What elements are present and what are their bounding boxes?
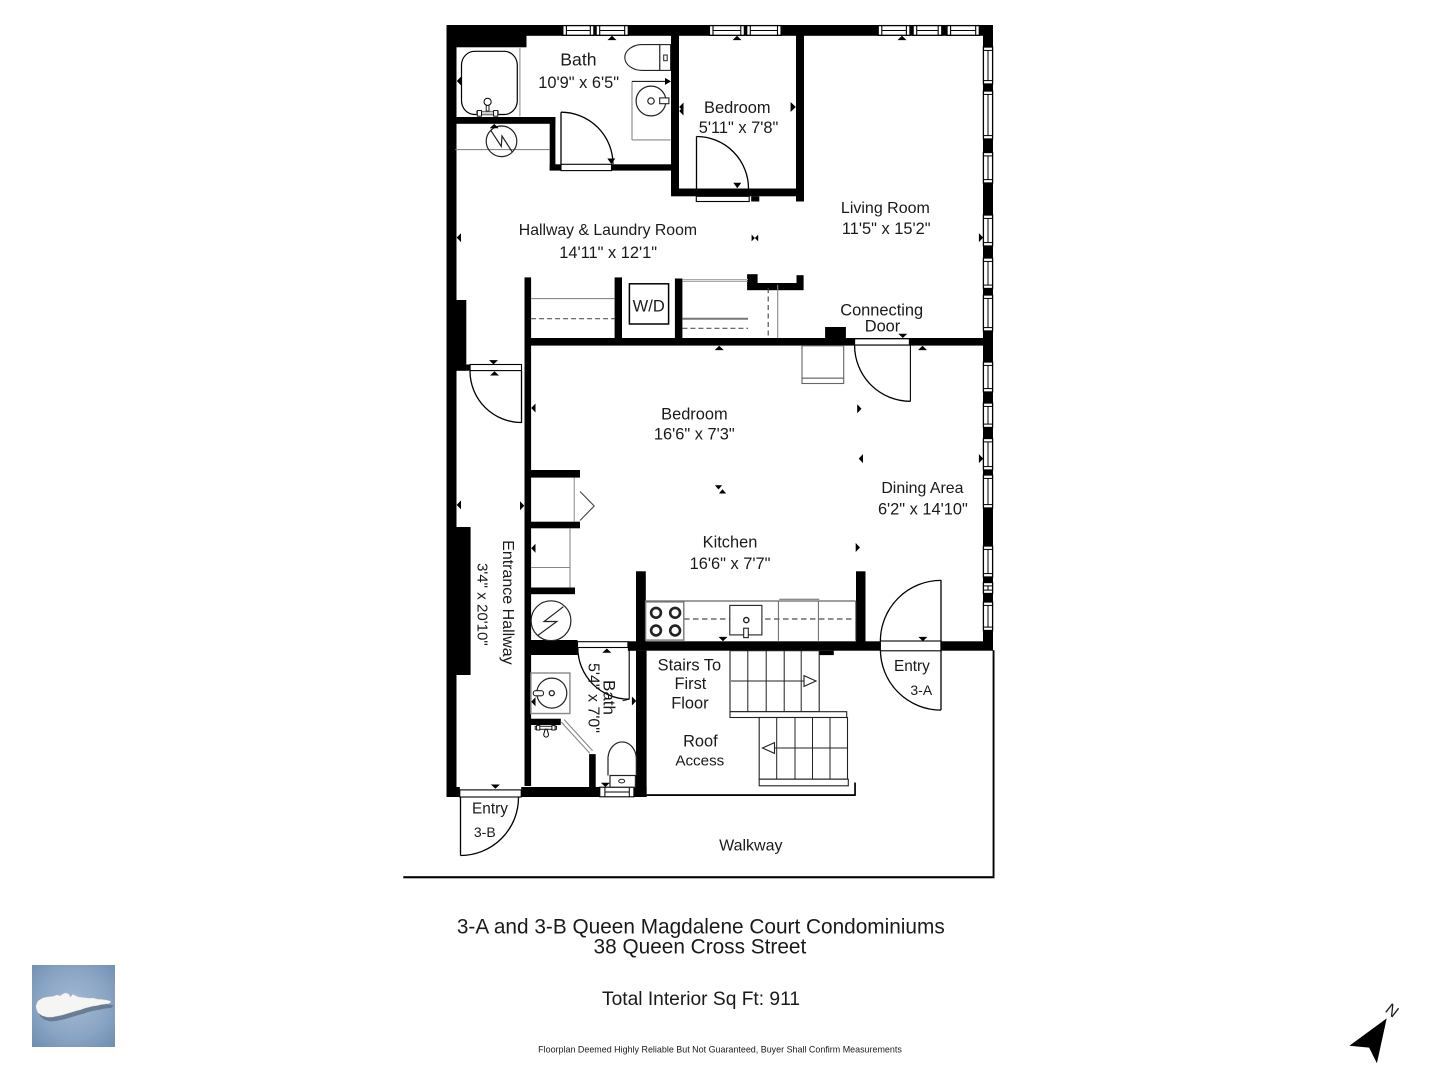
svg-text:N: N (1382, 1001, 1402, 1022)
svg-text:Entrance Hallway: Entrance Hallway (499, 540, 516, 665)
svg-text:3-B: 3-B (474, 824, 496, 840)
svg-text:Entry: Entry (472, 800, 508, 817)
svg-text:Total Interior Sq Ft: 911: Total Interior Sq Ft: 911 (602, 989, 800, 1010)
svg-text:5'11" x 7'8": 5'11" x 7'8" (699, 119, 779, 137)
svg-text:Bath: Bath (560, 50, 596, 70)
svg-text:Floor: Floor (671, 695, 709, 713)
svg-text:38 Queen Cross Street: 38 Queen Cross Street (594, 936, 807, 959)
svg-text:Dining Area: Dining Area (881, 480, 963, 497)
svg-text:Access: Access (675, 752, 724, 769)
svg-text:Bedroom: Bedroom (704, 99, 771, 117)
svg-text:W/D: W/D (633, 298, 665, 316)
svg-text:Entry: Entry (894, 658, 930, 675)
svg-text:Kitchen: Kitchen (703, 533, 758, 551)
svg-text:3'4" x 20'10": 3'4" x 20'10" (474, 563, 491, 646)
svg-text:Bedroom: Bedroom (661, 406, 728, 424)
svg-text:3-A: 3-A (910, 682, 932, 698)
svg-text:Hallway & Laundry Room: Hallway & Laundry Room (519, 222, 697, 239)
svg-text:Stairs To: Stairs To (658, 656, 721, 674)
svg-text:14'11" x 12'1": 14'11" x 12'1" (559, 244, 657, 262)
svg-text:6'2" x 14'10": 6'2" x 14'10" (878, 501, 968, 519)
svg-text:First: First (674, 675, 706, 693)
svg-text:Roof: Roof (683, 732, 718, 750)
svg-text:Walkway: Walkway (719, 837, 782, 854)
svg-text:11'5" x 15'2": 11'5" x 15'2" (842, 220, 931, 238)
svg-text:10'9" x 6'5": 10'9" x 6'5" (538, 74, 619, 92)
svg-text:16'6" x 7'7": 16'6" x 7'7" (690, 555, 771, 573)
svg-text:Living Room: Living Room (841, 200, 930, 217)
svg-text:Door: Door (865, 318, 901, 336)
svg-text:5'4" x 7'0": 5'4" x 7'0" (585, 663, 602, 733)
svg-text:16'6" x 7'3": 16'6" x 7'3" (654, 426, 735, 444)
svg-text:Floorplan Deemed Highly Reliab: Floorplan Deemed Highly Reliable But Not… (538, 1045, 902, 1055)
